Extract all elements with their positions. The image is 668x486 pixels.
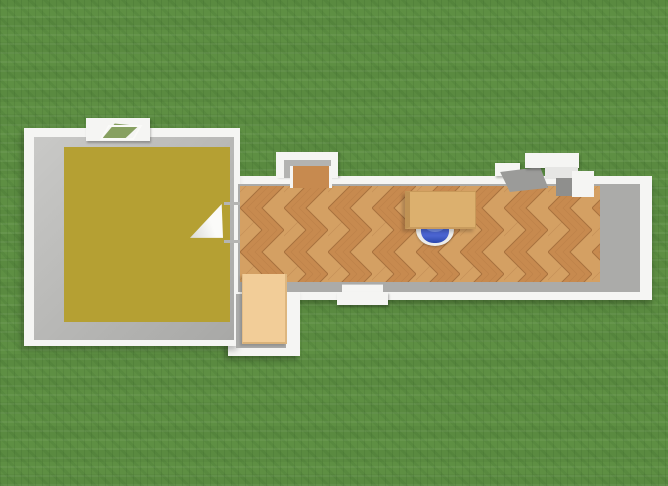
door-jamb-bottom — [224, 240, 240, 243]
door-jamb-top — [224, 202, 240, 205]
desk — [405, 191, 476, 229]
wardrobe — [242, 274, 287, 344]
entry-landing-wall-corner — [572, 171, 594, 197]
floor-plan-render — [0, 0, 668, 486]
window-bottom-hall-frame — [337, 292, 388, 305]
entry-landing-step-large — [525, 153, 579, 168]
entry-landing-jamb — [556, 178, 572, 196]
porch-door-opening — [290, 166, 332, 188]
